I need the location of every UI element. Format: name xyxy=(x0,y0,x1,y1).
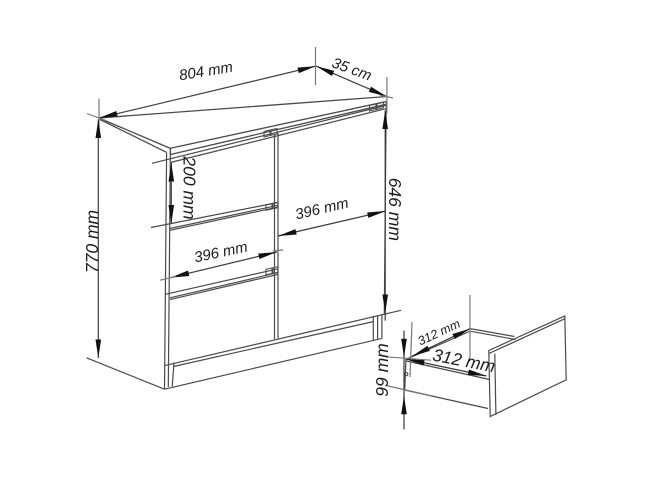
svg-text:770 mm: 770 mm xyxy=(82,210,102,273)
svg-text:646 mm: 646 mm xyxy=(385,178,405,241)
svg-text:200 mm: 200 mm xyxy=(180,155,200,219)
svg-text:99 mm: 99 mm xyxy=(372,343,392,396)
